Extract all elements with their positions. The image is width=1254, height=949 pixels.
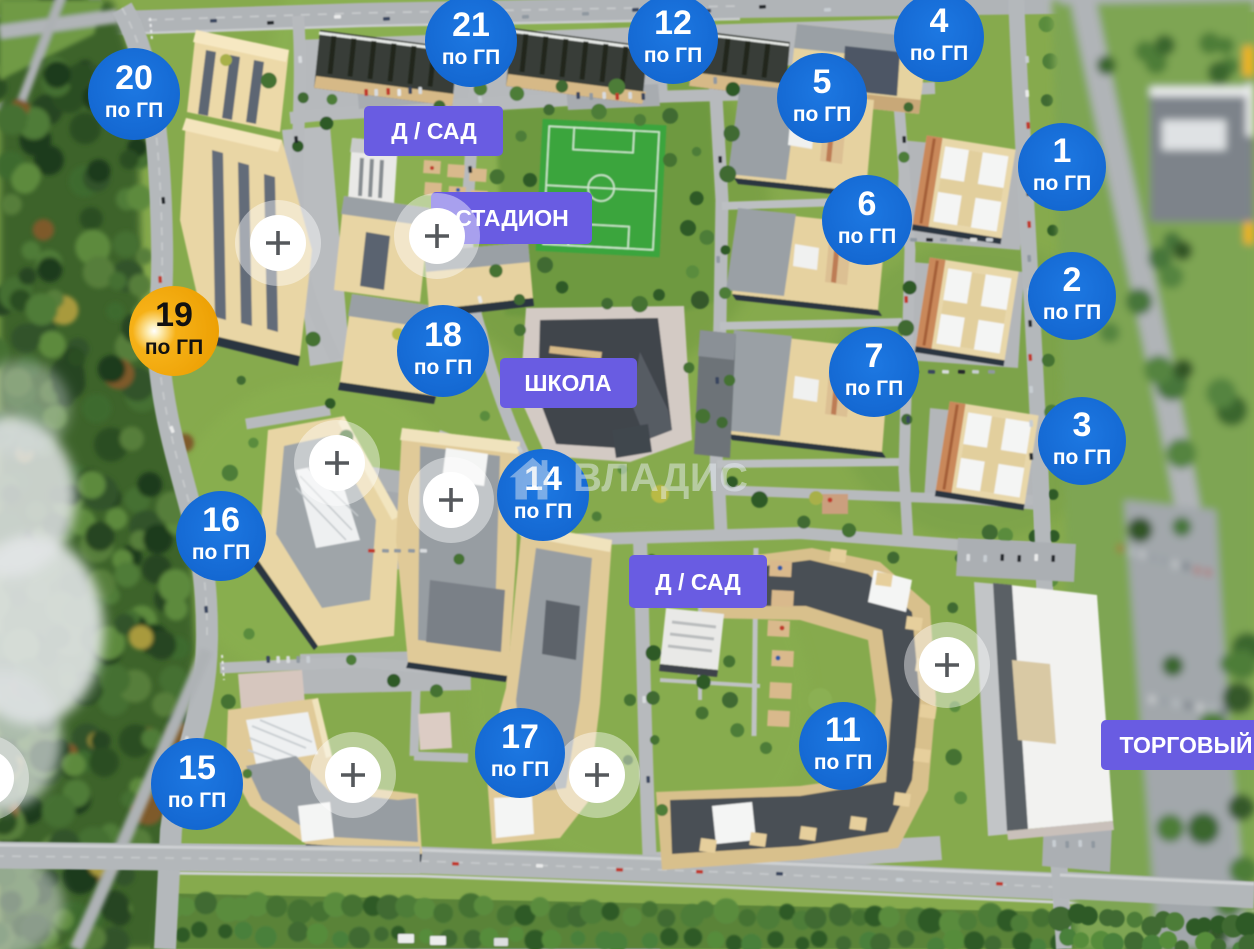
svg-text:по ГП: по ГП [793,103,851,126]
svg-text:ТОРГОВЫЙ: ТОРГОВЫЙ [1120,731,1253,758]
svg-text:по ГП: по ГП [1033,172,1091,195]
svg-text:ВЛАДИС: ВЛАДИС [573,456,748,500]
svg-text:3: 3 [1073,406,1092,444]
svg-text:по ГП: по ГП [644,44,702,67]
svg-text:19: 19 [155,296,193,334]
svg-text:по ГП: по ГП [1043,301,1101,324]
svg-text:18: 18 [424,316,462,354]
svg-text:5: 5 [813,63,832,101]
svg-text:20: 20 [115,59,153,97]
svg-text:16: 16 [202,501,240,539]
svg-text:11: 11 [825,711,861,749]
svg-text:Д / САД: Д / САД [655,569,740,595]
svg-text:15: 15 [178,749,216,787]
svg-text:ШКОЛА: ШКОЛА [524,370,611,396]
svg-text:6: 6 [858,185,877,223]
svg-text:по ГП: по ГП [442,46,500,69]
svg-text:по ГП: по ГП [814,751,872,774]
svg-text:17: 17 [501,718,539,756]
svg-text:12: 12 [654,4,692,42]
svg-text:по ГП: по ГП [168,789,226,812]
svg-text:по ГП: по ГП [514,500,572,523]
svg-text:7: 7 [865,337,884,375]
svg-text:Д / САД: Д / САД [391,118,476,144]
svg-text:по ГП: по ГП [838,225,896,248]
svg-text:по ГП: по ГП [910,42,968,65]
svg-text:1: 1 [1053,132,1072,170]
svg-text:по ГП: по ГП [845,377,903,400]
svg-text:по ГП: по ГП [192,541,250,564]
svg-text:по ГП: по ГП [1053,446,1111,469]
svg-text:4: 4 [930,2,949,40]
svg-text:2: 2 [1063,261,1082,299]
svg-text:по ГП: по ГП [414,356,472,379]
svg-text:по ГП: по ГП [145,336,203,359]
svg-text:21: 21 [452,6,490,44]
svg-text:по ГП: по ГП [105,99,163,122]
svg-text:по ГП: по ГП [491,758,549,781]
